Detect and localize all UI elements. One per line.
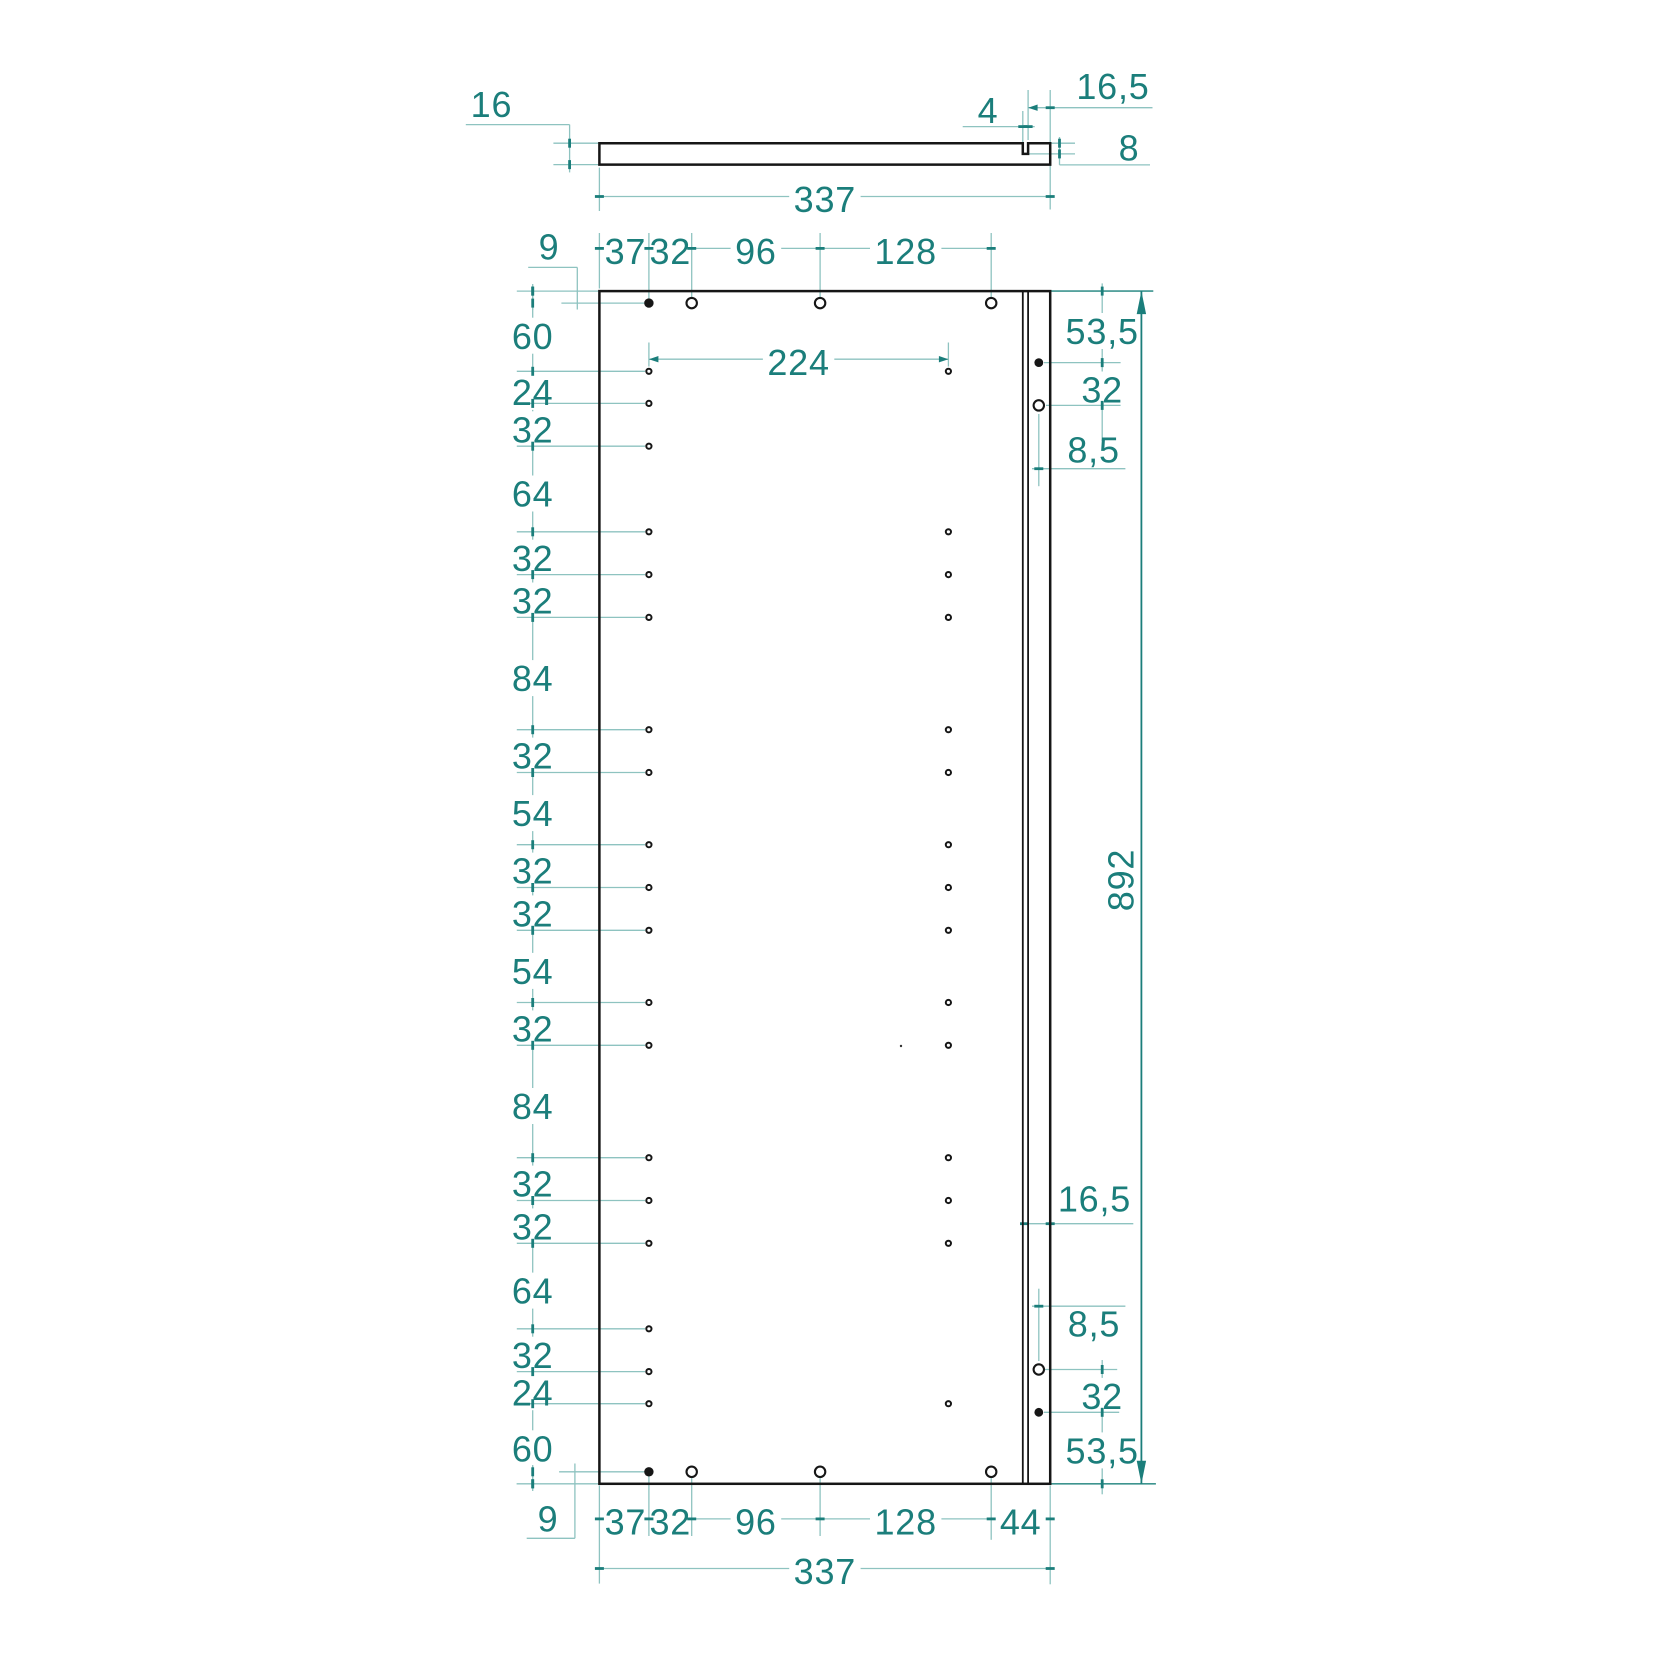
svg-text:128: 128 <box>874 1502 936 1543</box>
svg-text:64: 64 <box>512 1271 554 1312</box>
svg-text:32: 32 <box>512 736 554 777</box>
svg-text:32: 32 <box>649 231 691 272</box>
svg-text:54: 54 <box>512 951 554 992</box>
svg-text:16: 16 <box>471 84 513 125</box>
svg-text:96: 96 <box>735 1502 777 1543</box>
svg-text:8,5: 8,5 <box>1067 430 1119 471</box>
svg-text:8: 8 <box>1119 128 1140 169</box>
svg-text:8,5: 8,5 <box>1068 1304 1120 1345</box>
svg-text:4: 4 <box>978 90 999 131</box>
svg-text:32: 32 <box>512 409 554 450</box>
svg-text:9: 9 <box>538 1499 559 1540</box>
svg-text:84: 84 <box>512 1086 554 1127</box>
svg-text:24: 24 <box>512 1372 554 1413</box>
svg-text:32: 32 <box>512 1164 554 1205</box>
svg-text:37: 37 <box>605 231 647 272</box>
svg-text:32: 32 <box>1081 1376 1123 1417</box>
svg-text:32: 32 <box>512 1009 554 1050</box>
svg-text:53,5: 53,5 <box>1066 311 1139 352</box>
svg-text:9: 9 <box>539 227 560 268</box>
svg-text:84: 84 <box>512 658 554 699</box>
svg-text:60: 60 <box>512 1428 554 1469</box>
svg-text:16,5: 16,5 <box>1058 1179 1131 1220</box>
svg-text:53,5: 53,5 <box>1066 1431 1139 1472</box>
svg-text:337: 337 <box>794 1551 856 1592</box>
svg-text:54: 54 <box>512 793 554 834</box>
svg-text:64: 64 <box>512 474 554 515</box>
svg-text:32: 32 <box>512 581 554 622</box>
svg-text:337: 337 <box>794 179 856 220</box>
svg-text:128: 128 <box>874 231 936 272</box>
svg-text:32: 32 <box>512 538 554 579</box>
svg-text:32: 32 <box>649 1502 691 1543</box>
svg-text:96: 96 <box>735 231 777 272</box>
svg-text:224: 224 <box>767 342 829 383</box>
svg-text:44: 44 <box>1000 1502 1042 1543</box>
svg-text:32: 32 <box>512 894 554 935</box>
svg-text:32: 32 <box>512 1207 554 1248</box>
svg-text:24: 24 <box>512 372 554 413</box>
svg-text:60: 60 <box>512 316 554 357</box>
svg-text:37: 37 <box>605 1502 647 1543</box>
svg-text:32: 32 <box>512 851 554 892</box>
svg-text:32: 32 <box>512 1335 554 1376</box>
svg-text:16,5: 16,5 <box>1076 66 1149 107</box>
svg-text:892: 892 <box>1101 849 1142 911</box>
svg-text:32: 32 <box>1081 370 1123 411</box>
